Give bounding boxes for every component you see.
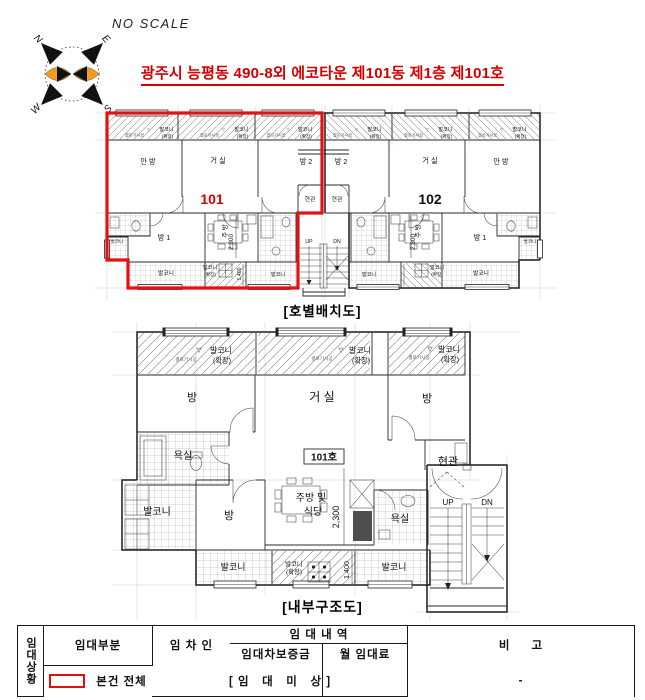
p1-balcony: 발코니 [159, 125, 174, 133]
rental-status-table: 임대상황 임대부분 임 차 인 임 대 내 역 임대차보증금 월 임대료 비 고… [17, 625, 635, 697]
p1-balcony: 발코니 [298, 125, 313, 133]
p2-balcony-bottom: 발코니 [221, 562, 246, 572]
p2-ext: (확장) [441, 355, 459, 364]
plan2-linework [122, 328, 507, 613]
p1-102-bang2: 방 2 [335, 157, 348, 166]
p2-bang-bottomleft: 방 [224, 509, 234, 522]
p1-balcony: 발코니 [512, 125, 527, 133]
table-data-value: [ 임 대 미 상 ] [153, 665, 407, 696]
p2-tri: ▽ [428, 346, 433, 353]
p2-tri: ▽ [339, 347, 344, 354]
p1-101-dim2300: 2,300 [228, 234, 235, 250]
p1-ext: (확장) [237, 133, 249, 140]
p1-101-hyeongwan: 현관 [305, 195, 316, 203]
p1-101-geosil: 거 실 [210, 156, 225, 165]
p1-up-label: UP [305, 239, 313, 245]
p2-note: 결로기시공 [311, 355, 332, 362]
table-data-note: - [408, 665, 634, 696]
p1-ext: (확장) [441, 133, 453, 140]
p2-balcony: 발코니 [210, 345, 232, 355]
p2-note: 결로기시공 [175, 356, 196, 363]
p2-dn-label: DN [481, 498, 493, 507]
p1-102-balcony-ext: 발코니 [430, 263, 445, 271]
p2-kitchen-line2: 식당 [304, 506, 322, 518]
p2-hyeongwan: 현관 [438, 455, 458, 468]
p1-unit101-number: 101 [200, 191, 224, 207]
p1-unit102-number: 102 [418, 191, 442, 207]
p2-dim2300: 2,300 [331, 506, 341, 529]
p1-101-bang2: 방 2 [300, 157, 313, 166]
p2-ext: (확장) [213, 356, 231, 365]
p1-ext: (확장) [515, 133, 527, 140]
plan2-internal-structure: 101호 방 거 실 방 욕실 현관 주방 및 식당 욕실 방 발코니 발코니 … [112, 322, 520, 620]
p1-101-balcony-small: 발코니 [271, 270, 286, 278]
table-col-deposit: 임대차보증금 [230, 643, 322, 665]
p2-dim1400: 1,400 [342, 561, 351, 579]
p1-101-bang1: 방 1 [158, 233, 171, 242]
p2-up-label: UP [442, 498, 453, 507]
table-col-part: 임대부분 [44, 625, 152, 665]
p2-geosil: 거 실 [309, 390, 334, 404]
p1-note: 결로기시공 [404, 132, 423, 139]
table-row-header: 임대상황 [18, 627, 43, 695]
p2-bang-topleft: 방 [187, 391, 197, 404]
p2-balcony: 발코니 [438, 344, 460, 354]
p1-102-dim2300: 2,300 [410, 234, 417, 250]
p2-bang-topright: 방 [422, 392, 432, 405]
p1-102-geosil: 거 실 [422, 156, 437, 165]
p2-yoksil-right: 욕실 [391, 513, 409, 525]
p2-ext: (확장) [352, 356, 370, 365]
table-col-note: 비 고 [408, 625, 634, 665]
p1-102-hyeongwan: 현관 [332, 195, 343, 203]
p1-note: 결로기시공 [200, 132, 219, 139]
p1-balcony: 발코니 [234, 125, 249, 133]
p1-balcony: 발코니 [438, 125, 453, 133]
p2-balcony-wing: 발코니 [143, 506, 171, 518]
p2-balcony: 발코니 [349, 345, 371, 355]
table-border-bottom-left [17, 696, 44, 697]
p1-102-anbang: 안 방 [493, 157, 509, 166]
plan1-unit-arrangement: 안 방 거 실 방 2 방 2 거 실 안 방 101 102 현관 현관 방 … [95, 104, 556, 300]
p2-yoksil-left: 욕실 [174, 450, 192, 462]
p1-balcony: 발코니 [367, 125, 382, 133]
p1-102-balcony-small: 발코니 [362, 270, 377, 278]
p1-102-ext: (확장) [431, 271, 443, 278]
p1-101-dim1400: 1,400 [237, 267, 243, 280]
p1-note: 결로기시공 [266, 132, 285, 139]
p1-101-balcony-bottom: 발코니 [158, 269, 174, 277]
p1-101-balcony-left: 발코니 [111, 238, 124, 245]
p1-note: 결로기시공 [478, 132, 497, 139]
p1-note: 결로기시공 [333, 132, 352, 139]
table-data-part-label: 본건 전체 [96, 673, 147, 689]
p2-balcony-ext: 발코니 [285, 559, 303, 568]
red-outline-legend-icon [49, 674, 85, 688]
table-col-detail: 임 대 내 역 [230, 625, 408, 643]
p2-unit-label: 101호 [311, 451, 337, 464]
table-col-monthly: 월 임대료 [323, 643, 407, 665]
p2-balcony-bottomright: 발코니 [382, 562, 407, 572]
p1-dn-label: DN [333, 239, 341, 245]
p1-102-balcony-bottom: 발코니 [473, 269, 489, 277]
plan2-caption: [내부구조도] [0, 597, 645, 617]
p1-ext: (확장) [370, 133, 382, 140]
p1-102-balcony-right: 발코니 [524, 238, 537, 245]
p1-note: 결로기시공 [125, 132, 144, 139]
p1-101-balcony-ext: 발코니 [203, 263, 218, 271]
floorplan-drawing: 안 방 거 실 방 2 방 2 거 실 안 방 101 102 현관 현관 방 … [0, 0, 645, 700]
plan1-caption: [호별배치도] [0, 300, 645, 320]
p1-ext: (확장) [162, 133, 174, 140]
p1-102-bang1: 방 1 [474, 233, 487, 242]
p1-ext: (확장) [300, 133, 312, 140]
table-col-tenant: 임 차 인 [153, 625, 230, 665]
p1-101-ext: (확장) [204, 271, 216, 278]
p2-note: 결로기시공 [408, 354, 429, 361]
p1-101-anbang: 안 방 [140, 157, 156, 166]
p2-tri: ▽ [197, 347, 202, 354]
p2-kitchen-line1: 주방 및 [296, 492, 326, 504]
table-data-part: 본건 전체 [44, 665, 152, 696]
p2-ext: (확장) [286, 567, 302, 576]
appraisal-floorplan-page: N E W S NO SCALE 광주시 능평동 490-8외 에코타운 제10… [0, 0, 645, 700]
